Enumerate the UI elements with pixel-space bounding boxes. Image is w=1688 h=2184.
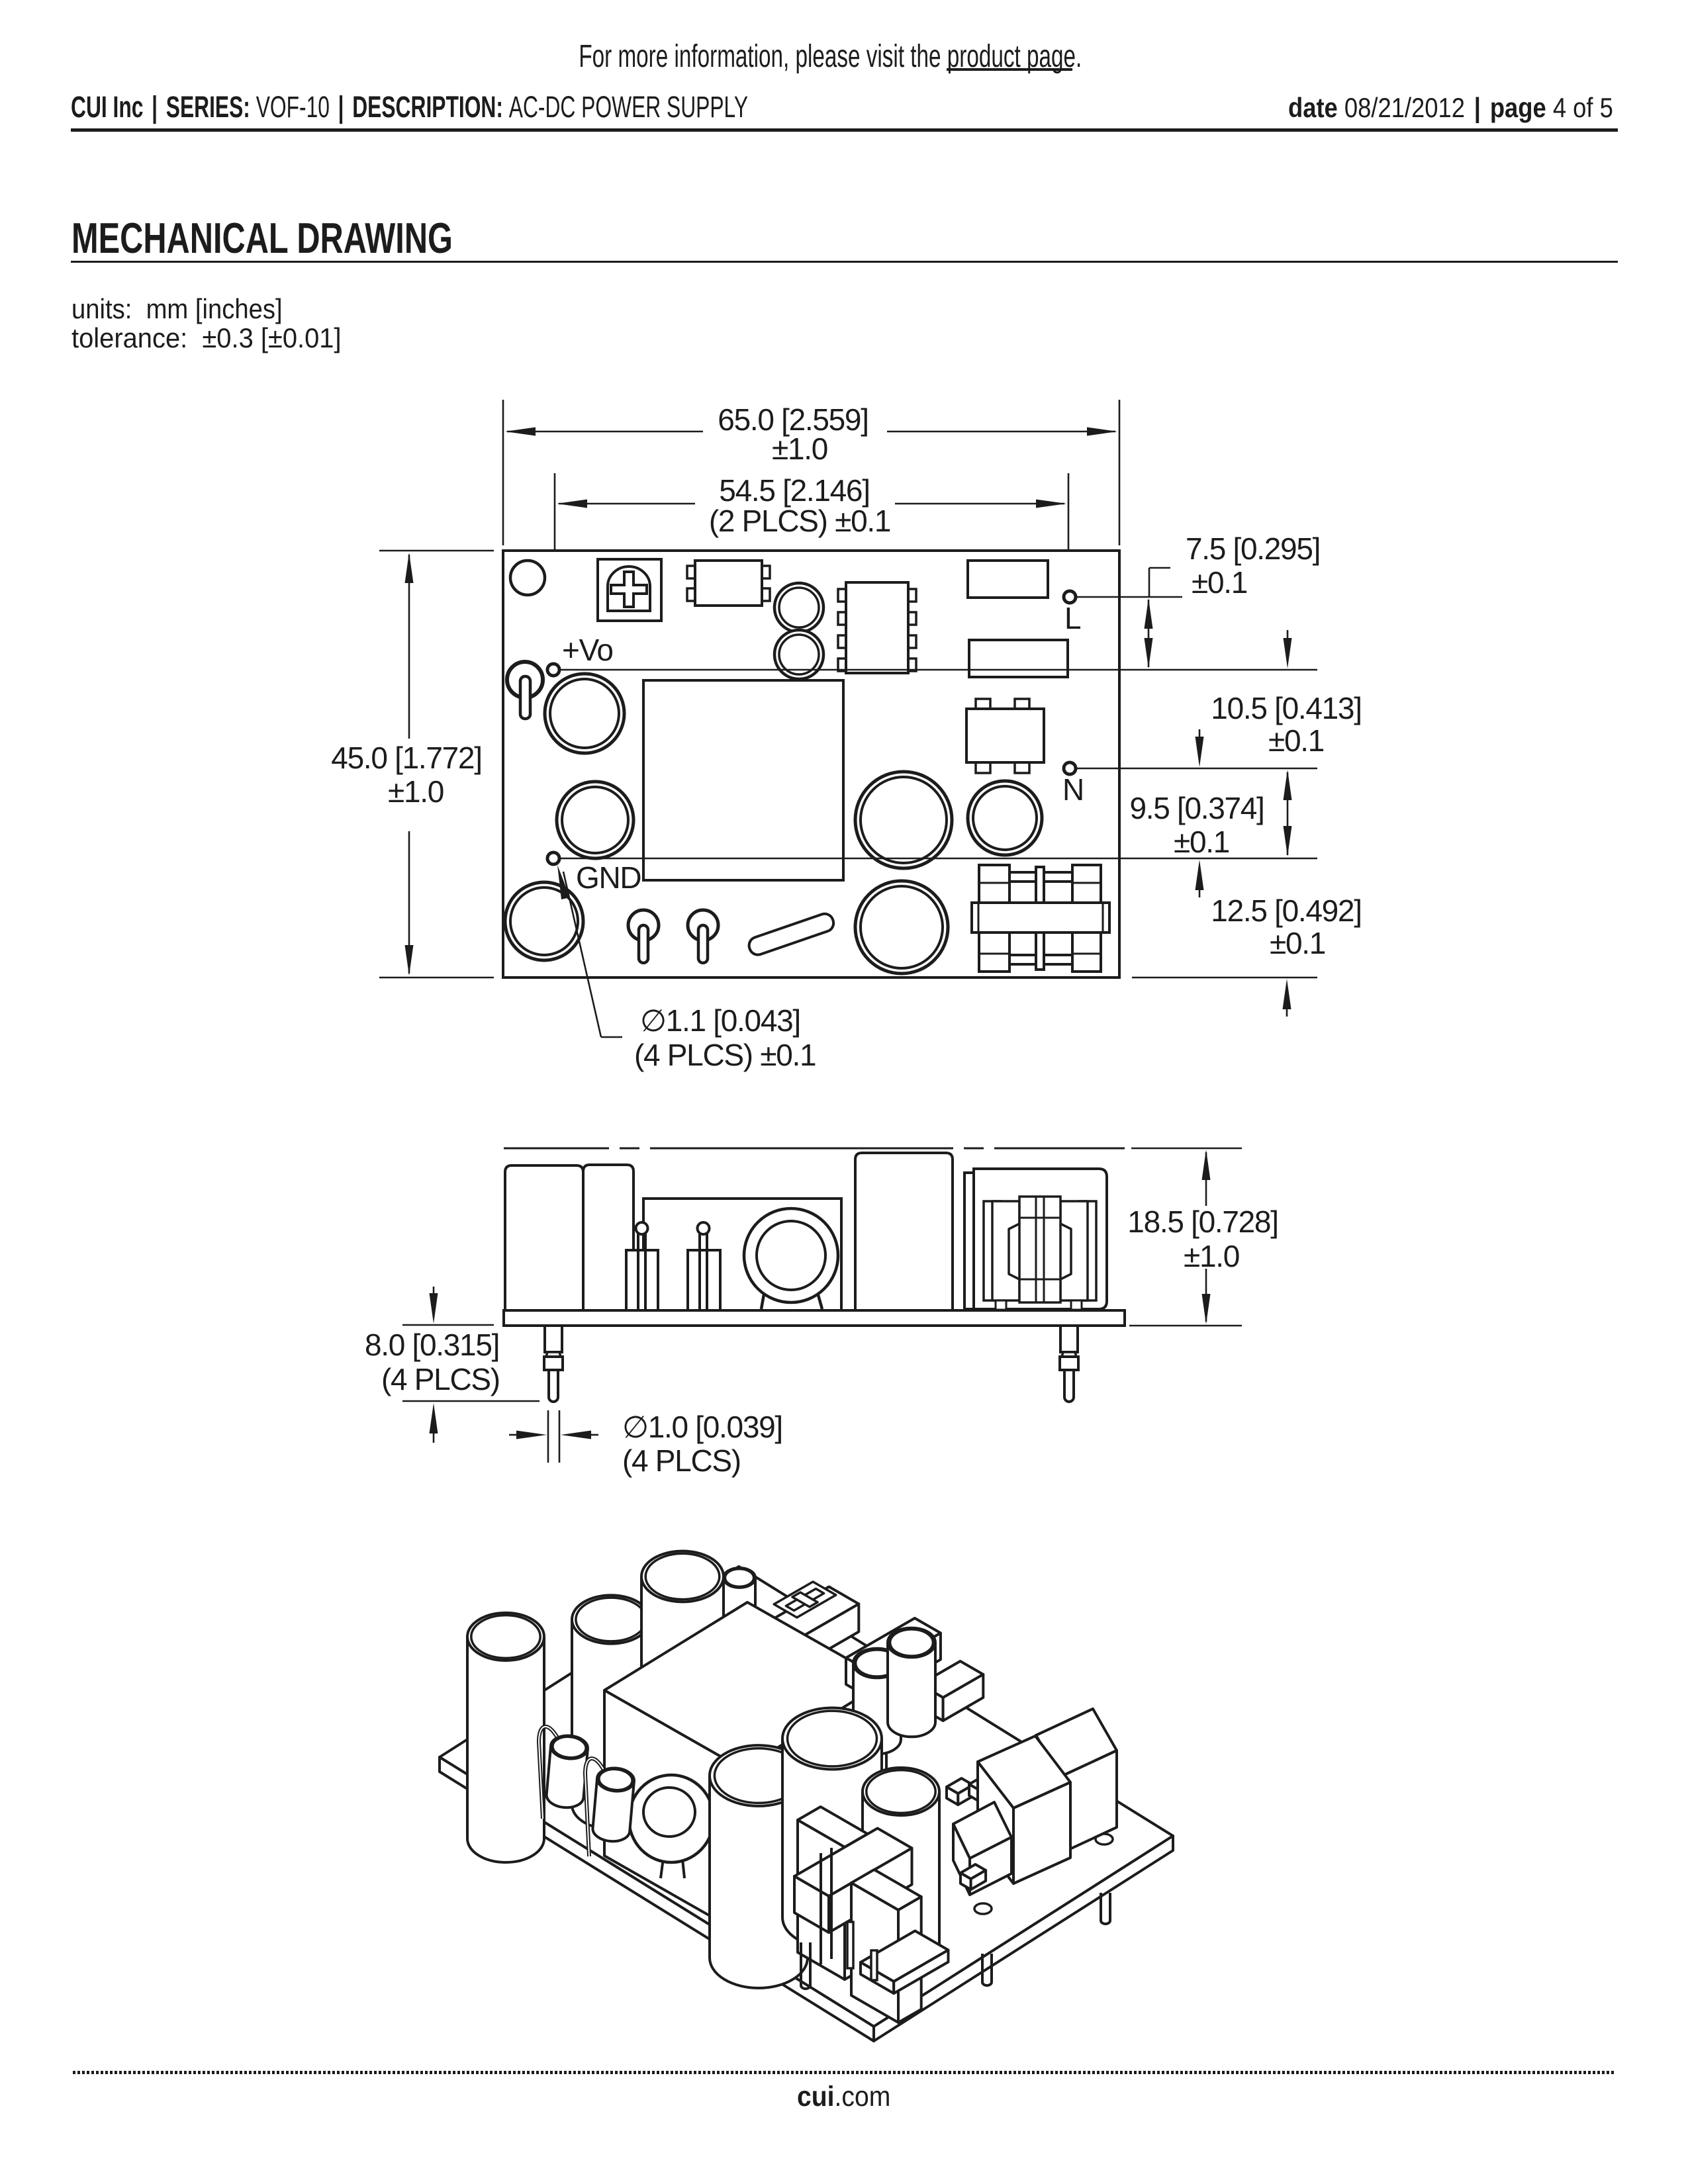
svg-text:±0.1: ±0.1 — [1268, 723, 1324, 758]
svg-text:N: N — [1062, 772, 1084, 807]
svg-text:∅1.0 [0.039]: ∅1.0 [0.039] — [622, 1410, 782, 1444]
svg-text:18.5 [0.728]: 18.5 [0.728] — [1127, 1205, 1278, 1239]
svg-text:54.5 [2.146]: 54.5 [2.146] — [719, 473, 869, 508]
svg-text:±1.0: ±1.0 — [388, 774, 444, 809]
svg-text:45.0 [1.772]: 45.0 [1.772] — [331, 741, 481, 775]
svg-text:±1.0: ±1.0 — [1184, 1239, 1239, 1273]
svg-text:(4 PLCS): (4 PLCS) — [381, 1362, 500, 1396]
svg-text:±1.0: ±1.0 — [772, 432, 827, 466]
svg-text:8.0 [0.315]: 8.0 [0.315] — [365, 1328, 499, 1362]
svg-text:10.5 [0.413]: 10.5 [0.413] — [1211, 691, 1361, 725]
svg-text:±0.1: ±0.1 — [1270, 926, 1325, 960]
svg-text:L: L — [1064, 601, 1081, 635]
svg-text:±0.1: ±0.1 — [1174, 825, 1229, 859]
svg-text:(4 PLCS): (4 PLCS) — [622, 1443, 741, 1478]
svg-text:GND: GND — [576, 860, 641, 895]
svg-text:(2 PLCS) ±0.1: (2 PLCS) ±0.1 — [709, 504, 890, 538]
svg-text:(4 PLCS) ±0.1: (4 PLCS) ±0.1 — [634, 1038, 816, 1072]
svg-text:12.5 [0.492]: 12.5 [0.492] — [1211, 893, 1361, 928]
svg-text:∅1.1 [0.043]: ∅1.1 [0.043] — [640, 1003, 800, 1038]
svg-text:+Vo: +Vo — [562, 633, 613, 667]
svg-text:7.5 [0.295]: 7.5 [0.295] — [1186, 531, 1320, 566]
svg-text:±0.1: ±0.1 — [1192, 565, 1247, 600]
svg-text:9.5 [0.374]: 9.5 [0.374] — [1129, 791, 1264, 825]
